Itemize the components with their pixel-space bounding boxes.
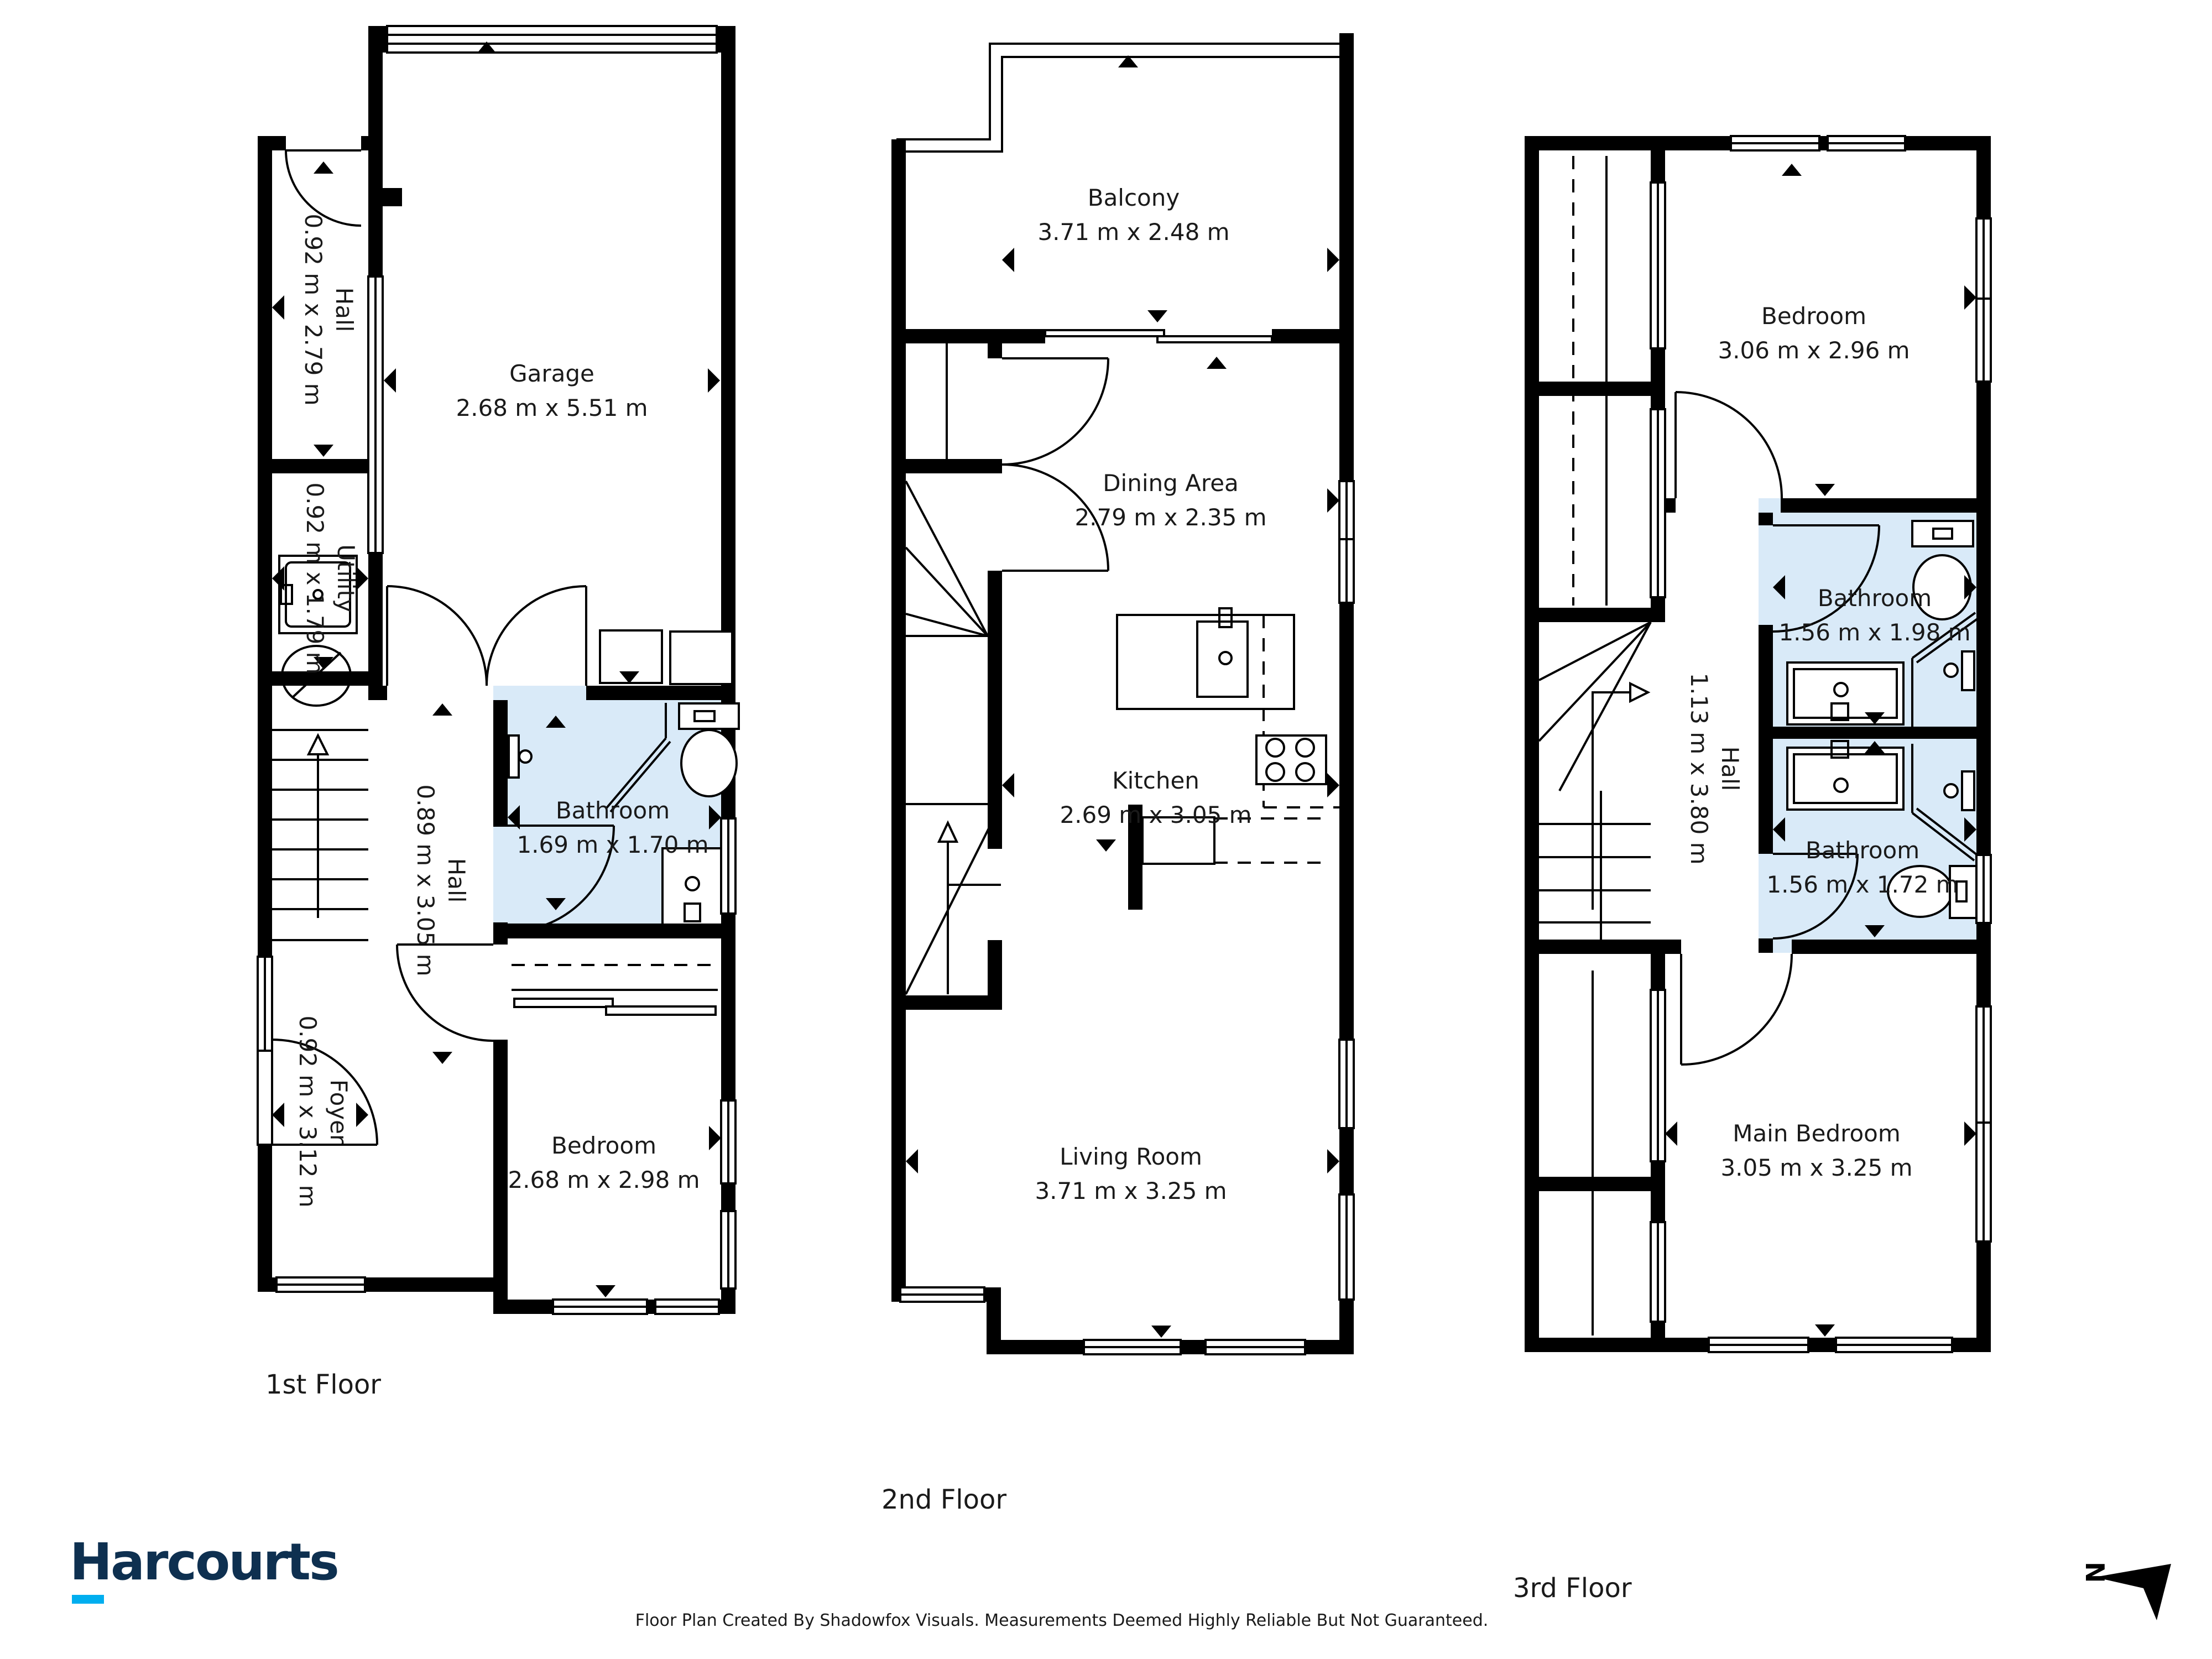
toilet-icon-1f: [679, 703, 739, 796]
floor-plan-page: Hall 0.92 m x 2.79 m Garage 2.68 m x 5.5…: [0, 0, 2212, 1659]
room-label-balcony: Balcony 3.71 m x 2.48 m: [1037, 184, 1229, 246]
svg-text:1.13 m x 3.80 m: 1.13 m x 3.80 m: [1686, 672, 1713, 864]
void-strip-icon: [1573, 156, 1606, 1335]
svg-text:Dining Area: Dining Area: [1103, 469, 1239, 497]
room-label-kitchen: Kitchen 2.69 m x 3.05 m: [1060, 767, 1251, 828]
svg-text:2.68 m x 2.98 m: 2.68 m x 2.98 m: [508, 1166, 700, 1193]
svg-text:1.56 m x 1.98 m: 1.56 m x 1.98 m: [1778, 619, 1970, 646]
svg-text:Bathroom: Bathroom: [1818, 585, 1932, 612]
compass: N: [2080, 1562, 2171, 1620]
floor-label-2nd: 2nd Floor: [881, 1484, 1006, 1515]
svg-text:0.92 m x 1.79 m: 0.92 m x 1.79 m: [301, 482, 328, 674]
svg-text:1.56 m x 1.72 m: 1.56 m x 1.72 m: [1766, 871, 1958, 898]
sliding-door-icon: [1045, 330, 1272, 342]
floor-label-3rd: 3rd Floor: [1513, 1573, 1632, 1604]
svg-text:3.06 m x 2.96 m: 3.06 m x 2.96 m: [1718, 337, 1910, 364]
garage-box-icon: [670, 632, 732, 684]
room-label-bedroom-1f: Bedroom 2.68 m x 2.98 m: [508, 1132, 700, 1193]
sink-icon-3f-bottom: [1787, 741, 1903, 810]
glazed-panel-icon: [368, 276, 383, 553]
svg-text:1.69 m x 1.70 m: 1.69 m x 1.70 m: [517, 831, 708, 858]
svg-text:Bathroom: Bathroom: [1806, 837, 1919, 864]
room-label-bedroom-3f: Bedroom 3.06 m x 2.96 m: [1718, 302, 1910, 364]
svg-text:Utility: Utility: [332, 544, 359, 613]
sink-icon-1f: [662, 848, 722, 925]
svg-text:Bathroom: Bathroom: [556, 797, 670, 824]
logo-underline: [72, 1595, 104, 1604]
garage-door-icon: [387, 26, 717, 53]
floor-plan-drawing: Hall 0.92 m x 2.79 m Garage 2.68 m x 5.5…: [0, 0, 2212, 1659]
cooktop-icon: [1256, 735, 1326, 784]
north-label: N: [2080, 1562, 2110, 1583]
room-label-hall-3f: Hall 1.13 m x 3.80 m: [1686, 672, 1744, 864]
sink-icon-3f-top: [1787, 662, 1903, 724]
svg-text:3.71 m x 2.48 m: 3.71 m x 2.48 m: [1037, 218, 1229, 246]
bedroom-door-icon-3f: [1676, 392, 1782, 498]
svg-text:Kitchen: Kitchen: [1112, 767, 1199, 794]
room-label-living: Living Room 3.71 m x 3.25 m: [1035, 1143, 1227, 1204]
svg-text:Main Bedroom: Main Bedroom: [1733, 1120, 1901, 1147]
stairs-icon-1f: [272, 730, 368, 940]
bedroom-door-icon-1f: [397, 945, 493, 1041]
room-label-foyer: Foyer 0.92 m x 3.12 m: [294, 1015, 352, 1207]
double-door-icon-2f: [1002, 358, 1108, 571]
room-label-main-bedroom: Main Bedroom 3.05 m x 3.25 m: [1720, 1120, 1912, 1181]
room-label-garage: Garage 2.68 m x 5.51 m: [456, 360, 648, 421]
windows-2f: [900, 481, 1354, 1354]
floorplan-1st-floor: Hall 0.92 m x 2.79 m Garage 2.68 m x 5.5…: [258, 26, 739, 1400]
svg-text:Living Room: Living Room: [1060, 1143, 1202, 1170]
stairs-icon-2f: [906, 481, 1001, 994]
floorplan-3rd-floor: Bedroom 3.06 m x 2.96 m Bathroom 1.56 m …: [1513, 136, 1991, 1604]
disclaimer-text: Floor Plan Created By Shadowfox Visuals.…: [635, 1611, 1489, 1630]
main-bedroom-door-icon: [1681, 954, 1792, 1065]
svg-text:2.69 m x 3.05 m: 2.69 m x 3.05 m: [1060, 801, 1251, 828]
floor-label-1st: 1st Floor: [265, 1369, 381, 1400]
room-label-hall-1f: Hall 0.92 m x 2.79 m: [300, 213, 358, 405]
svg-text:0.92 m x 2.79 m: 0.92 m x 2.79 m: [300, 213, 327, 405]
svg-text:0.92 m x 3.12 m: 0.92 m x 3.12 m: [294, 1015, 321, 1207]
svg-text:Bedroom: Bedroom: [1761, 302, 1866, 330]
balcony-railing-icon: [896, 44, 1339, 152]
svg-text:2.79 m x 2.35 m: 2.79 m x 2.35 m: [1074, 504, 1266, 531]
floorplan-2nd-floor: Balcony 3.71 m x 2.48 m Dining Area 2.79…: [881, 33, 1354, 1515]
svg-text:2.68 m x 5.51 m: 2.68 m x 5.51 m: [456, 394, 648, 421]
svg-text:Balcony: Balcony: [1088, 184, 1180, 211]
svg-text:Hall: Hall: [443, 858, 470, 903]
room-label-hall2-1f: Hall 0.89 m x 3.05 m: [412, 784, 470, 976]
svg-text:Garage: Garage: [509, 360, 594, 387]
svg-text:3.05 m x 3.25 m: 3.05 m x 3.25 m: [1720, 1154, 1912, 1181]
svg-text:Hall: Hall: [331, 288, 358, 332]
room-label-dining: Dining Area 2.79 m x 2.35 m: [1074, 469, 1266, 531]
svg-text:0.89 m x 3.05 m: 0.89 m x 3.05 m: [412, 784, 439, 976]
wardrobe-icon-1f: [512, 965, 718, 1015]
double-door-icon: [387, 586, 586, 686]
branding-logo: Harcourts: [70, 1532, 338, 1604]
svg-text:Bedroom: Bedroom: [551, 1132, 656, 1159]
logo-text: Harcourts: [70, 1532, 338, 1592]
svg-text:3.71 m x 3.25 m: 3.71 m x 3.25 m: [1035, 1177, 1227, 1204]
stairs-icon-3f: [1539, 622, 1651, 940]
svg-text:Foyer: Foyer: [325, 1079, 352, 1144]
svg-text:Hall: Hall: [1717, 747, 1744, 791]
